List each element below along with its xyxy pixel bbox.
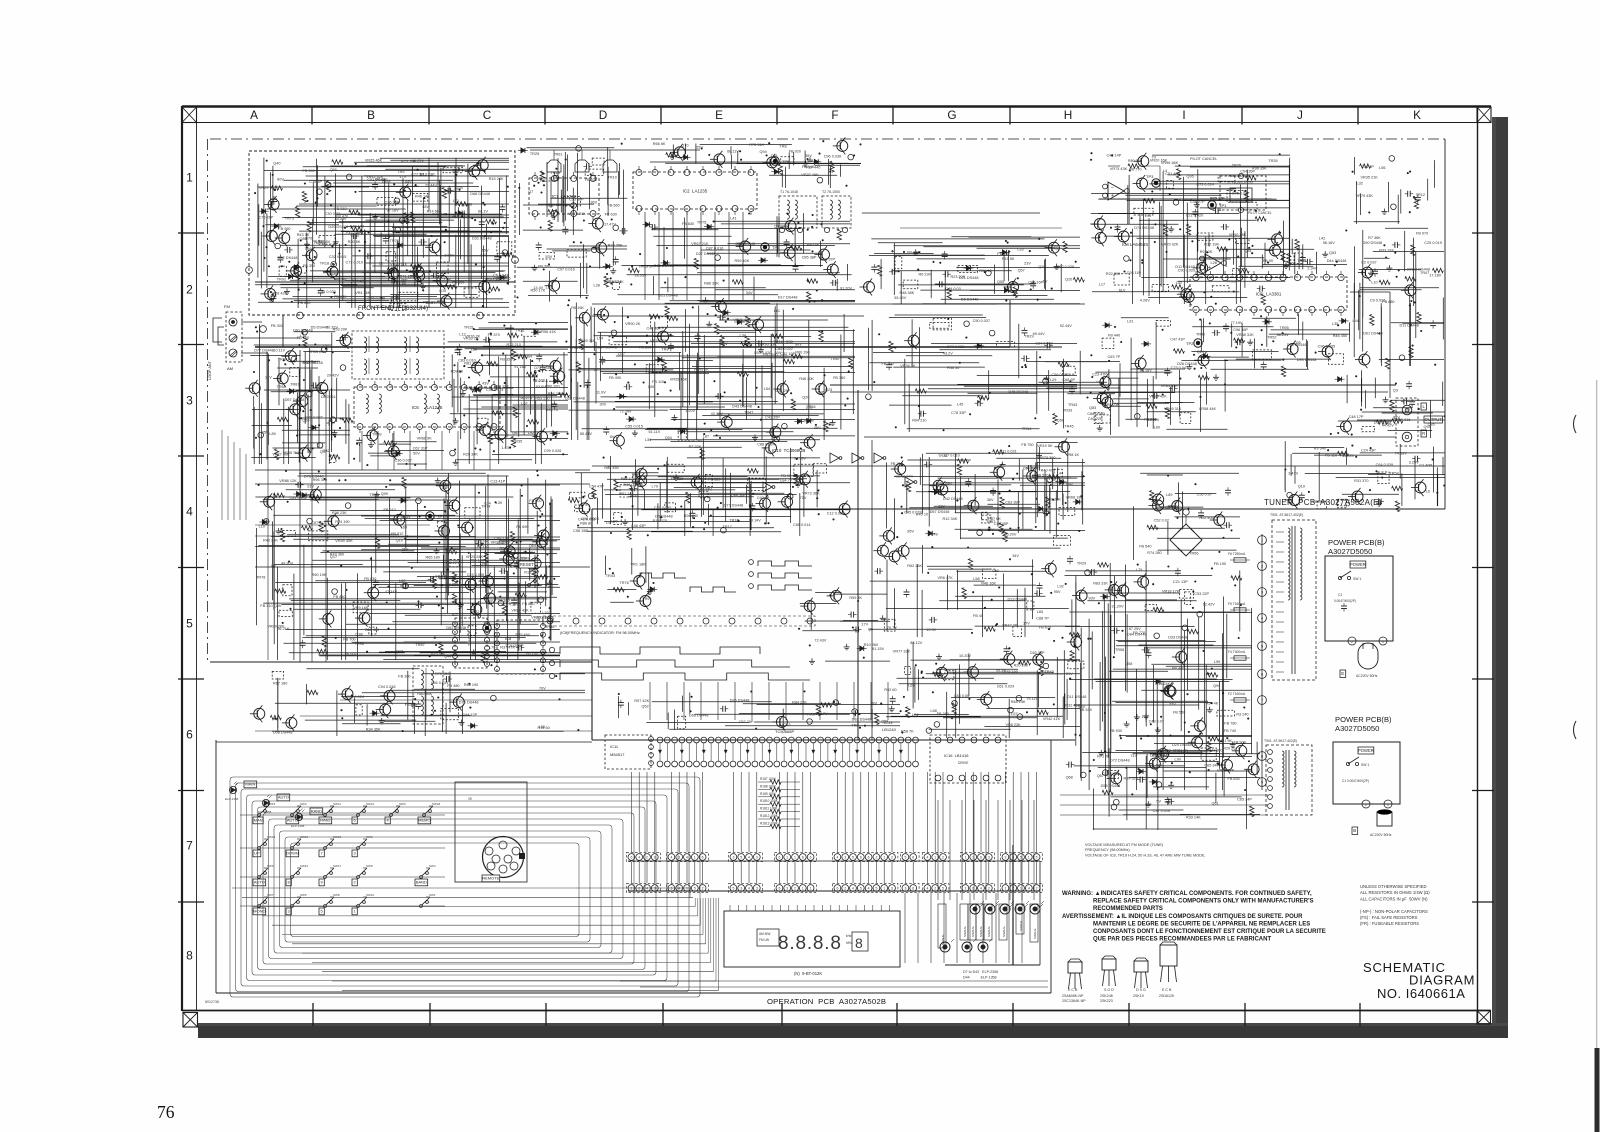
svg-text:5: 5 [1261, 645, 1263, 649]
svg-text:60V: 60V [277, 178, 284, 182]
svg-text:R28 420: R28 420 [272, 291, 286, 295]
svg-text:SW5: SW5 [300, 893, 307, 897]
svg-text:FB 440: FB 440 [1108, 334, 1120, 338]
svg-text:LB1240: LB1240 [882, 727, 897, 732]
svg-text:POWER: POWER [1350, 562, 1366, 567]
svg-text:FB 920: FB 920 [789, 150, 801, 154]
svg-text:79.11V: 79.11V [1026, 697, 1038, 701]
svg-text:L28: L28 [594, 284, 600, 288]
svg-text:76: 76 [157, 1102, 175, 1122]
svg-text:Q6: Q6 [868, 628, 873, 632]
svg-text:FB 950: FB 950 [278, 227, 290, 231]
svg-text:IC1 LA1222: IC1 LA1222 [552, 194, 577, 199]
svg-text:R99 40: R99 40 [352, 279, 364, 283]
svg-text:FB 390: FB 390 [937, 712, 949, 716]
svg-text:1: 1 [1382, 640, 1384, 644]
svg-text:FB 140: FB 140 [997, 252, 1009, 256]
svg-text:PILOT CANCEL: PILOT CANCEL [1248, 211, 1272, 215]
svg-text:50V: 50V [413, 452, 420, 456]
svg-text:SW12: SW12 [366, 802, 375, 806]
svg-text:3: 3 [844, 856, 846, 860]
svg-text:VR42 2K: VR42 2K [1002, 623, 1018, 627]
svg-text:L12: L12 [459, 333, 465, 337]
svg-text:C83 0.010: C83 0.010 [458, 358, 476, 362]
svg-text:L90: L90 [1175, 758, 1181, 762]
svg-text:74.16V: 74.16V [1395, 452, 1408, 456]
svg-text:TR50: TR50 [1180, 751, 1189, 755]
svg-text:SW7: SW7 [267, 893, 274, 897]
svg-text:3.25V: 3.25V [1409, 460, 1419, 464]
svg-text:Q19: Q19 [396, 539, 403, 543]
svg-text:FB 830: FB 830 [334, 295, 346, 299]
svg-text:R: R [1422, 431, 1425, 436]
svg-text:VR55 20K: VR55 20K [309, 350, 327, 354]
svg-text:4.39V: 4.39V [509, 602, 519, 606]
svg-text:SIGNAL: SIGNAL [963, 926, 967, 937]
svg-text:19V: 19V [938, 504, 945, 508]
svg-text:R7 36K: R7 36K [1368, 236, 1381, 240]
svg-text:VR93 33K: VR93 33K [759, 343, 777, 347]
svg-text:R33 31K: R33 31K [1379, 248, 1394, 252]
svg-text:Q38: Q38 [786, 340, 793, 344]
svg-text:SW16: SW16 [366, 893, 375, 897]
svg-text:C1: C1 [1338, 593, 1342, 597]
svg-text:R86 70: R86 70 [546, 408, 558, 412]
svg-text:20V: 20V [1407, 267, 1414, 271]
svg-text:D56 DS448: D56 DS448 [426, 301, 446, 305]
svg-text:VR4 36K: VR4 36K [355, 291, 371, 295]
svg-text:6V: 6V [1043, 280, 1048, 284]
svg-text:L42: L42 [1176, 281, 1182, 285]
svg-text:TR87: TR87 [415, 643, 424, 647]
svg-text:R71 70: R71 70 [1097, 754, 1109, 758]
svg-text:4.26V: 4.26V [1140, 298, 1150, 302]
svg-text:R74 280: R74 280 [1147, 551, 1161, 555]
svg-text:C93 4P: C93 4P [757, 496, 770, 500]
svg-text:1.20V: 1.20V [685, 409, 695, 413]
svg-text:L57: L57 [323, 344, 329, 348]
svg-text:(FS) : FAIL SAFE RESISTORS: (FS) : FAIL SAFE RESISTORS [1360, 915, 1418, 920]
svg-text:D11 DS448: D11 DS448 [1067, 695, 1086, 699]
svg-text:3: 3 [756, 856, 758, 860]
svg-text:Q64: Q64 [525, 354, 532, 358]
svg-text:S G D: S G D [1104, 988, 1114, 992]
svg-text:F: F [831, 108, 838, 122]
svg-text:FB 560: FB 560 [608, 203, 620, 207]
svg-text:68.1V: 68.1V [478, 210, 488, 214]
svg-text:C98 0.035: C98 0.035 [493, 276, 511, 280]
svg-text:L45: L45 [957, 402, 963, 406]
svg-text:TR18: TR18 [320, 262, 329, 266]
svg-text:Q24: Q24 [1197, 350, 1204, 354]
svg-text:AC220V 50Hz: AC220V 50Hz [1356, 674, 1378, 678]
svg-text:TR54: TR54 [1389, 472, 1398, 476]
svg-text:17V: 17V [1023, 622, 1030, 626]
svg-text:D31 DS448: D31 DS448 [472, 236, 492, 240]
svg-text:1: 1 [794, 856, 796, 860]
svg-text:52.44V: 52.44V [1060, 324, 1073, 328]
svg-text:C64 0.039: C64 0.039 [1376, 463, 1394, 467]
svg-text:Q25: Q25 [1294, 341, 1301, 345]
svg-text:C12 0.028: C12 0.028 [827, 512, 845, 516]
svg-text:3: 3 [964, 887, 966, 891]
svg-text:43.2V: 43.2V [943, 352, 953, 356]
svg-text:TR43: TR43 [1068, 403, 1077, 407]
svg-text:C36 0.027: C36 0.027 [395, 458, 413, 462]
svg-text:F6 T250mA: F6 T250mA [1228, 552, 1246, 556]
svg-text:53.6V: 53.6V [536, 385, 546, 389]
svg-text:R12 260: R12 260 [431, 653, 445, 657]
svg-text:C84 0.042: C84 0.042 [1023, 467, 1041, 471]
svg-text:C65 0.035: C65 0.035 [1102, 772, 1120, 776]
svg-text:F2 T160mA: F2 T160mA [1228, 692, 1246, 696]
svg-text:D: D [599, 108, 608, 122]
svg-text:91.15V: 91.15V [872, 647, 885, 651]
svg-text:L68: L68 [444, 278, 450, 282]
svg-text:C30 0.044: C30 0.044 [486, 388, 504, 392]
svg-text:RESET: RESET [520, 562, 534, 567]
svg-text:C43 0.07: C43 0.07 [1149, 719, 1164, 723]
svg-text:R14 60: R14 60 [538, 726, 550, 730]
svg-text:L17: L17 [1099, 282, 1105, 286]
svg-text:6: 6 [778, 856, 780, 860]
svg-text:R46 450: R46 450 [1333, 334, 1347, 338]
svg-text:65V: 65V [482, 249, 489, 253]
svg-text:L71: L71 [453, 199, 459, 203]
svg-text:C61 0.029: C61 0.029 [997, 685, 1015, 689]
svg-text:(FR) : FUSEABLE RESISTORS: (FR) : FUSEABLE RESISTORS [1360, 921, 1419, 926]
svg-text:FB 900: FB 900 [1234, 741, 1246, 745]
svg-text:FB 350: FB 350 [500, 358, 512, 362]
svg-text:TR10: TR10 [608, 175, 617, 179]
svg-text:23V: 23V [307, 484, 314, 488]
svg-text:TR39: TR39 [938, 454, 947, 458]
svg-text:R75 31K: R75 31K [749, 143, 764, 147]
svg-text:R14 370: R14 370 [653, 519, 667, 523]
svg-text:72.39V: 72.39V [620, 409, 633, 413]
svg-text:TR91: TR91 [515, 329, 524, 333]
svg-text:10.11V: 10.11V [273, 349, 285, 353]
svg-text:VR8 1K: VR8 1K [1066, 453, 1080, 457]
svg-text:1: 1 [802, 887, 804, 891]
svg-text:R6 16K: R6 16K [571, 306, 584, 310]
svg-text:SW8: SW8 [366, 864, 373, 868]
svg-text:9: 9 [1261, 781, 1263, 785]
svg-text:SW6: SW6 [267, 864, 274, 868]
svg-text:VOLTAGE OF IC8, TR19 H.24, 50: VOLTAGE OF IC8, TR19 H.24, 50 H.33, 46, … [1085, 853, 1205, 857]
svg-text:FM LW: FM LW [759, 938, 769, 942]
svg-text:L91: L91 [1127, 320, 1133, 324]
svg-text:MAN: MAN [254, 818, 263, 823]
svg-text:C62 31P: C62 31P [413, 447, 428, 451]
svg-text:2SK223: 2SK223 [1100, 999, 1113, 1003]
svg-text:C63 7P: C63 7P [1108, 355, 1121, 359]
svg-text:23V: 23V [1024, 262, 1031, 266]
svg-text:L87: L87 [703, 435, 709, 439]
svg-text:35V: 35V [805, 154, 812, 158]
svg-text:70V: 70V [539, 687, 546, 691]
svg-text:D74 DS448: D74 DS448 [1134, 226, 1154, 230]
svg-text:SIGNAL: SIGNAL [987, 926, 991, 937]
svg-text:TR49: TR49 [520, 557, 529, 561]
svg-text:D33 DS448: D33 DS448 [1168, 635, 1188, 639]
svg-text:C63 39P: C63 39P [1005, 501, 1020, 505]
svg-text:R86 80: R86 80 [580, 521, 592, 525]
svg-text:C85 38P: C85 38P [802, 256, 817, 260]
svg-text:D7 to D43 ELP-2358: D7 to D43 ELP-2358 [963, 970, 998, 974]
svg-text:FB 750: FB 750 [1021, 443, 1033, 447]
svg-text:83.12V: 83.12V [910, 641, 923, 645]
svg-text:61.17V: 61.17V [816, 712, 829, 716]
svg-text:C55 0.015: C55 0.015 [625, 425, 643, 429]
svg-text:R75 24K: R75 24K [474, 539, 489, 543]
svg-text:3: 3 [756, 887, 758, 891]
svg-text:+: + [1111, 193, 1114, 199]
svg-text:FB 490: FB 490 [609, 376, 621, 380]
svg-text:R97 290: R97 290 [763, 353, 777, 357]
svg-text:C81 0.042: C81 0.042 [290, 496, 308, 500]
svg-text:L89: L89 [269, 432, 275, 436]
svg-text:C56 0.07: C56 0.07 [1197, 493, 1212, 497]
svg-text:8.8.8.8: 8.8.8.8 [778, 933, 842, 954]
svg-text:TR26: TR26 [1232, 163, 1241, 167]
svg-text:1: 1 [810, 887, 812, 891]
svg-text:1: 1 [1261, 539, 1263, 543]
svg-text:2: 2 [702, 887, 704, 891]
svg-text:kHz: kHz [846, 934, 852, 938]
svg-text:SIGNAL: SIGNAL [941, 934, 945, 945]
svg-text:C25 0.019: C25 0.019 [1424, 241, 1442, 245]
svg-text:J: J [1297, 108, 1303, 122]
svg-text:R6 230: R6 230 [919, 273, 931, 277]
svg-text:1: 1 [186, 171, 193, 185]
svg-text:2SC1364K-NP: 2SC1364K-NP [1062, 999, 1086, 1003]
svg-text:FB 440: FB 440 [1172, 667, 1184, 671]
svg-text:VR20 42K: VR20 42K [1149, 394, 1167, 398]
svg-text:C90 0.020: C90 0.020 [1178, 268, 1196, 272]
svg-text:86.20V: 86.20V [1004, 532, 1017, 536]
svg-text:R86 170: R86 170 [621, 477, 635, 481]
svg-text:C93 11P: C93 11P [1127, 271, 1142, 275]
svg-text:TR96: TR96 [355, 642, 364, 646]
svg-text:D44 ELP-1358: D44 ELP-1358 [963, 976, 997, 980]
svg-text:D11 DS448: D11 DS448 [1400, 323, 1419, 327]
svg-text:R78 170: R78 170 [350, 224, 364, 228]
svg-text:UP: UP [254, 851, 260, 856]
svg-text:SIGNAL: SIGNAL [971, 926, 975, 937]
svg-text:R51 18K: R51 18K [619, 492, 634, 496]
svg-text:R40 470: R40 470 [1041, 468, 1055, 472]
svg-text:R65 180: R65 180 [426, 555, 440, 559]
svg-text:WARNING: ▲INDICATES SAFETY CRI: WARNING: ▲INDICATES SAFETY CRITICAL COMP… [1062, 891, 1312, 897]
svg-text:FB 930: FB 930 [1110, 729, 1122, 733]
svg-text:R66 6K: R66 6K [653, 142, 666, 146]
svg-text:L25: L25 [1109, 587, 1115, 591]
svg-text:65.33V: 65.33V [1342, 454, 1355, 458]
svg-text:37V: 37V [488, 362, 495, 366]
svg-text:TR43: TR43 [606, 574, 615, 578]
svg-text:L18: L18 [547, 204, 553, 208]
svg-text:6V: 6V [610, 435, 615, 439]
svg-text:C97 0.016: C97 0.016 [557, 268, 575, 272]
svg-text:3: 3 [1004, 856, 1006, 860]
svg-text:18V: 18V [870, 701, 877, 705]
svg-text:99.40V: 99.40V [523, 551, 536, 555]
svg-text:D91 DS448: D91 DS448 [293, 328, 313, 332]
svg-text:95V: 95V [1054, 590, 1061, 594]
svg-text:D24 DS448: D24 DS448 [1172, 743, 1192, 747]
svg-text:TR58: TR58 [1115, 648, 1124, 652]
svg-text:17V: 17V [861, 622, 868, 626]
svg-text:90V: 90V [795, 342, 802, 346]
svg-text:R6 21K: R6 21K [277, 627, 290, 631]
svg-text:VR35 21K: VR35 21K [1361, 175, 1379, 179]
svg-text:R188 100K: R188 100K [760, 784, 777, 788]
svg-text:VR19 5K: VR19 5K [1037, 444, 1053, 448]
svg-text:VR39 26K: VR39 26K [742, 320, 760, 324]
svg-text:C94 0.032: C94 0.032 [318, 290, 336, 294]
svg-text:TR54: TR54 [806, 405, 815, 409]
svg-text:C58 15P: C58 15P [573, 529, 588, 533]
svg-text:(IC8)FREQUENCY INDICATOR: FM 9: (IC8)FREQUENCY INDICATOR: FM 98.00MHz [560, 631, 640, 635]
svg-text:FB 620: FB 620 [435, 574, 447, 578]
svg-text:R22 25K: R22 25K [608, 243, 623, 247]
svg-text:29.44V: 29.44V [425, 183, 438, 187]
svg-text:QUE PAR DES PIECES RECOMMANDEE: QUE PAR DES PIECES RECOMMANDEES PAR LE F… [1093, 937, 1271, 943]
svg-text:A3027D5050: A3027D5050 [1328, 547, 1372, 556]
svg-text:R79 150: R79 150 [435, 672, 449, 676]
svg-text:VR34 3K: VR34 3K [900, 364, 916, 368]
svg-text:6: 6 [1261, 673, 1263, 677]
svg-text:AVERTISSEMENT: ▲IL INDIQUE LES: AVERTISSEMENT: ▲IL INDIQUE LES COMPOSANT… [1062, 914, 1303, 920]
svg-text:FB 740: FB 740 [1224, 729, 1236, 733]
svg-text:40.43V: 40.43V [711, 412, 724, 416]
svg-text:R43 5K: R43 5K [297, 233, 310, 237]
svg-text:R1810 100K: R1810 100K [760, 799, 779, 803]
svg-text:DRIVE: DRIVE [958, 761, 969, 765]
svg-text:L34: L34 [740, 334, 746, 338]
svg-text:R74 190: R74 190 [335, 520, 349, 524]
svg-text:A3027D5050: A3027D5050 [1335, 724, 1379, 733]
svg-text:L33: L33 [1017, 247, 1023, 251]
svg-text:VR49 40K: VR49 40K [335, 539, 353, 543]
svg-text:TR14: TR14 [1022, 427, 1031, 431]
svg-text:L60: L60 [1154, 426, 1160, 430]
svg-text:Q53: Q53 [1329, 251, 1336, 255]
svg-text:3: 3 [186, 394, 193, 408]
svg-text:SIGNAL: SIGNAL [1033, 928, 1037, 939]
svg-text:FB 430: FB 430 [1149, 763, 1161, 767]
svg-text:Q13: Q13 [396, 649, 403, 653]
svg-text:Q3: Q3 [1393, 389, 1398, 393]
svg-text:D21 DS448: D21 DS448 [658, 294, 678, 298]
svg-text:17V: 17V [399, 175, 406, 179]
svg-text:VR82 11K: VR82 11K [390, 263, 407, 267]
svg-text:5: 5 [852, 856, 854, 860]
svg-text:5: 5 [904, 856, 906, 860]
svg-text:L67: L67 [521, 402, 527, 406]
svg-text:L28: L28 [1211, 261, 1217, 265]
svg-text:CONPOSANTS DONT LE FONCTIONNEM: CONPOSANTS DONT LE FONCTIONNEMENT EST CR… [1093, 929, 1326, 935]
svg-text:IC11: IC11 [610, 744, 619, 749]
svg-text:VR27 46K: VR27 46K [801, 173, 819, 177]
svg-text:Q20: Q20 [802, 395, 809, 399]
svg-text:R28 290: R28 290 [688, 439, 702, 443]
svg-text:R59 40K: R59 40K [735, 259, 750, 263]
svg-text:R59 5K: R59 5K [849, 596, 862, 600]
svg-text:C71 0.019: C71 0.019 [346, 261, 364, 265]
svg-text:TR87: TR87 [831, 357, 840, 361]
svg-text:C44 30P: C44 30P [731, 493, 746, 497]
svg-text:AC220V 50Hz: AC220V 50Hz [1370, 833, 1392, 837]
svg-text:T1 76-1048: T1 76-1048 [780, 190, 798, 194]
svg-text:26V: 26V [402, 547, 409, 551]
svg-text:L6: L6 [1426, 490, 1430, 494]
svg-text:Q64: Q64 [529, 544, 536, 548]
svg-text:TR6: TR6 [851, 724, 858, 728]
svg-text:R62 26K: R62 26K [907, 564, 922, 568]
svg-text:10V: 10V [1142, 715, 1149, 719]
svg-text:R53 24K: R53 24K [1155, 682, 1170, 686]
svg-text:R56 21K: R56 21K [548, 392, 563, 396]
svg-text:L65: L65 [1037, 610, 1043, 614]
svg-text:D23 DS448: D23 DS448 [1008, 598, 1028, 602]
svg-text:C42 14P: C42 14P [1107, 154, 1122, 158]
svg-text:3.41V: 3.41V [1288, 472, 1298, 476]
svg-text:6: 6 [912, 887, 914, 891]
svg-text:L92: L92 [1057, 584, 1063, 588]
svg-text:FB 840: FB 840 [333, 595, 345, 599]
svg-text:C1 0.0047/400(2P): C1 0.0047/400(2P) [1342, 779, 1369, 783]
svg-text:84.18V: 84.18V [1140, 369, 1153, 373]
svg-text:C78 33P: C78 33P [951, 411, 966, 415]
svg-text:VR71 15K: VR71 15K [397, 274, 415, 278]
svg-text:Q63: Q63 [1288, 261, 1295, 265]
svg-text:D6 DS448: D6 DS448 [961, 297, 979, 301]
svg-text:Q44: Q44 [444, 655, 451, 659]
svg-text:E: E [715, 108, 723, 122]
svg-text:36V: 36V [590, 201, 597, 205]
svg-text:Q23: Q23 [825, 388, 832, 392]
svg-text:97.18V: 97.18V [387, 209, 400, 213]
svg-text:VR78 42K: VR78 42K [650, 339, 668, 343]
svg-text:76.22V: 76.22V [448, 561, 461, 565]
svg-text:R40 29K: R40 29K [263, 539, 278, 543]
svg-text:SW3: SW3 [399, 802, 406, 806]
svg-text:31.18V: 31.18V [318, 240, 331, 244]
svg-text:C2 0.037: C2 0.037 [1361, 261, 1376, 265]
svg-text:(-NP-) : NON-POLAR CAPACITORS: (-NP-) : NON-POLAR CAPACITORS [1360, 909, 1428, 914]
svg-text:4: 4 [686, 856, 688, 860]
svg-text:R7 22K: R7 22K [689, 445, 702, 449]
svg-text:D85 DS448: D85 DS448 [654, 264, 674, 268]
svg-text:C86 16P: C86 16P [1028, 281, 1043, 285]
svg-text:TR35: TR35 [513, 439, 522, 443]
svg-text:D66 DS448: D66 DS448 [689, 714, 709, 718]
svg-text:R187 100K: R187 100K [760, 777, 777, 781]
svg-text:D85 DS448: D85 DS448 [303, 361, 323, 365]
svg-text:53V: 53V [545, 255, 552, 259]
svg-text:R67 180: R67 180 [273, 681, 287, 685]
svg-text:Q40: Q40 [273, 162, 280, 166]
svg-text:C75 26P: C75 26P [259, 216, 274, 220]
svg-text:VR1 18K: VR1 18K [631, 563, 647, 567]
svg-text:C71 29P: C71 29P [776, 389, 791, 393]
svg-text:TR12: TR12 [1416, 193, 1425, 197]
svg-text:C85 0.014: C85 0.014 [793, 523, 811, 527]
svg-text:3: 3 [670, 887, 672, 891]
svg-text:TP2: TP2 [1186, 341, 1194, 346]
